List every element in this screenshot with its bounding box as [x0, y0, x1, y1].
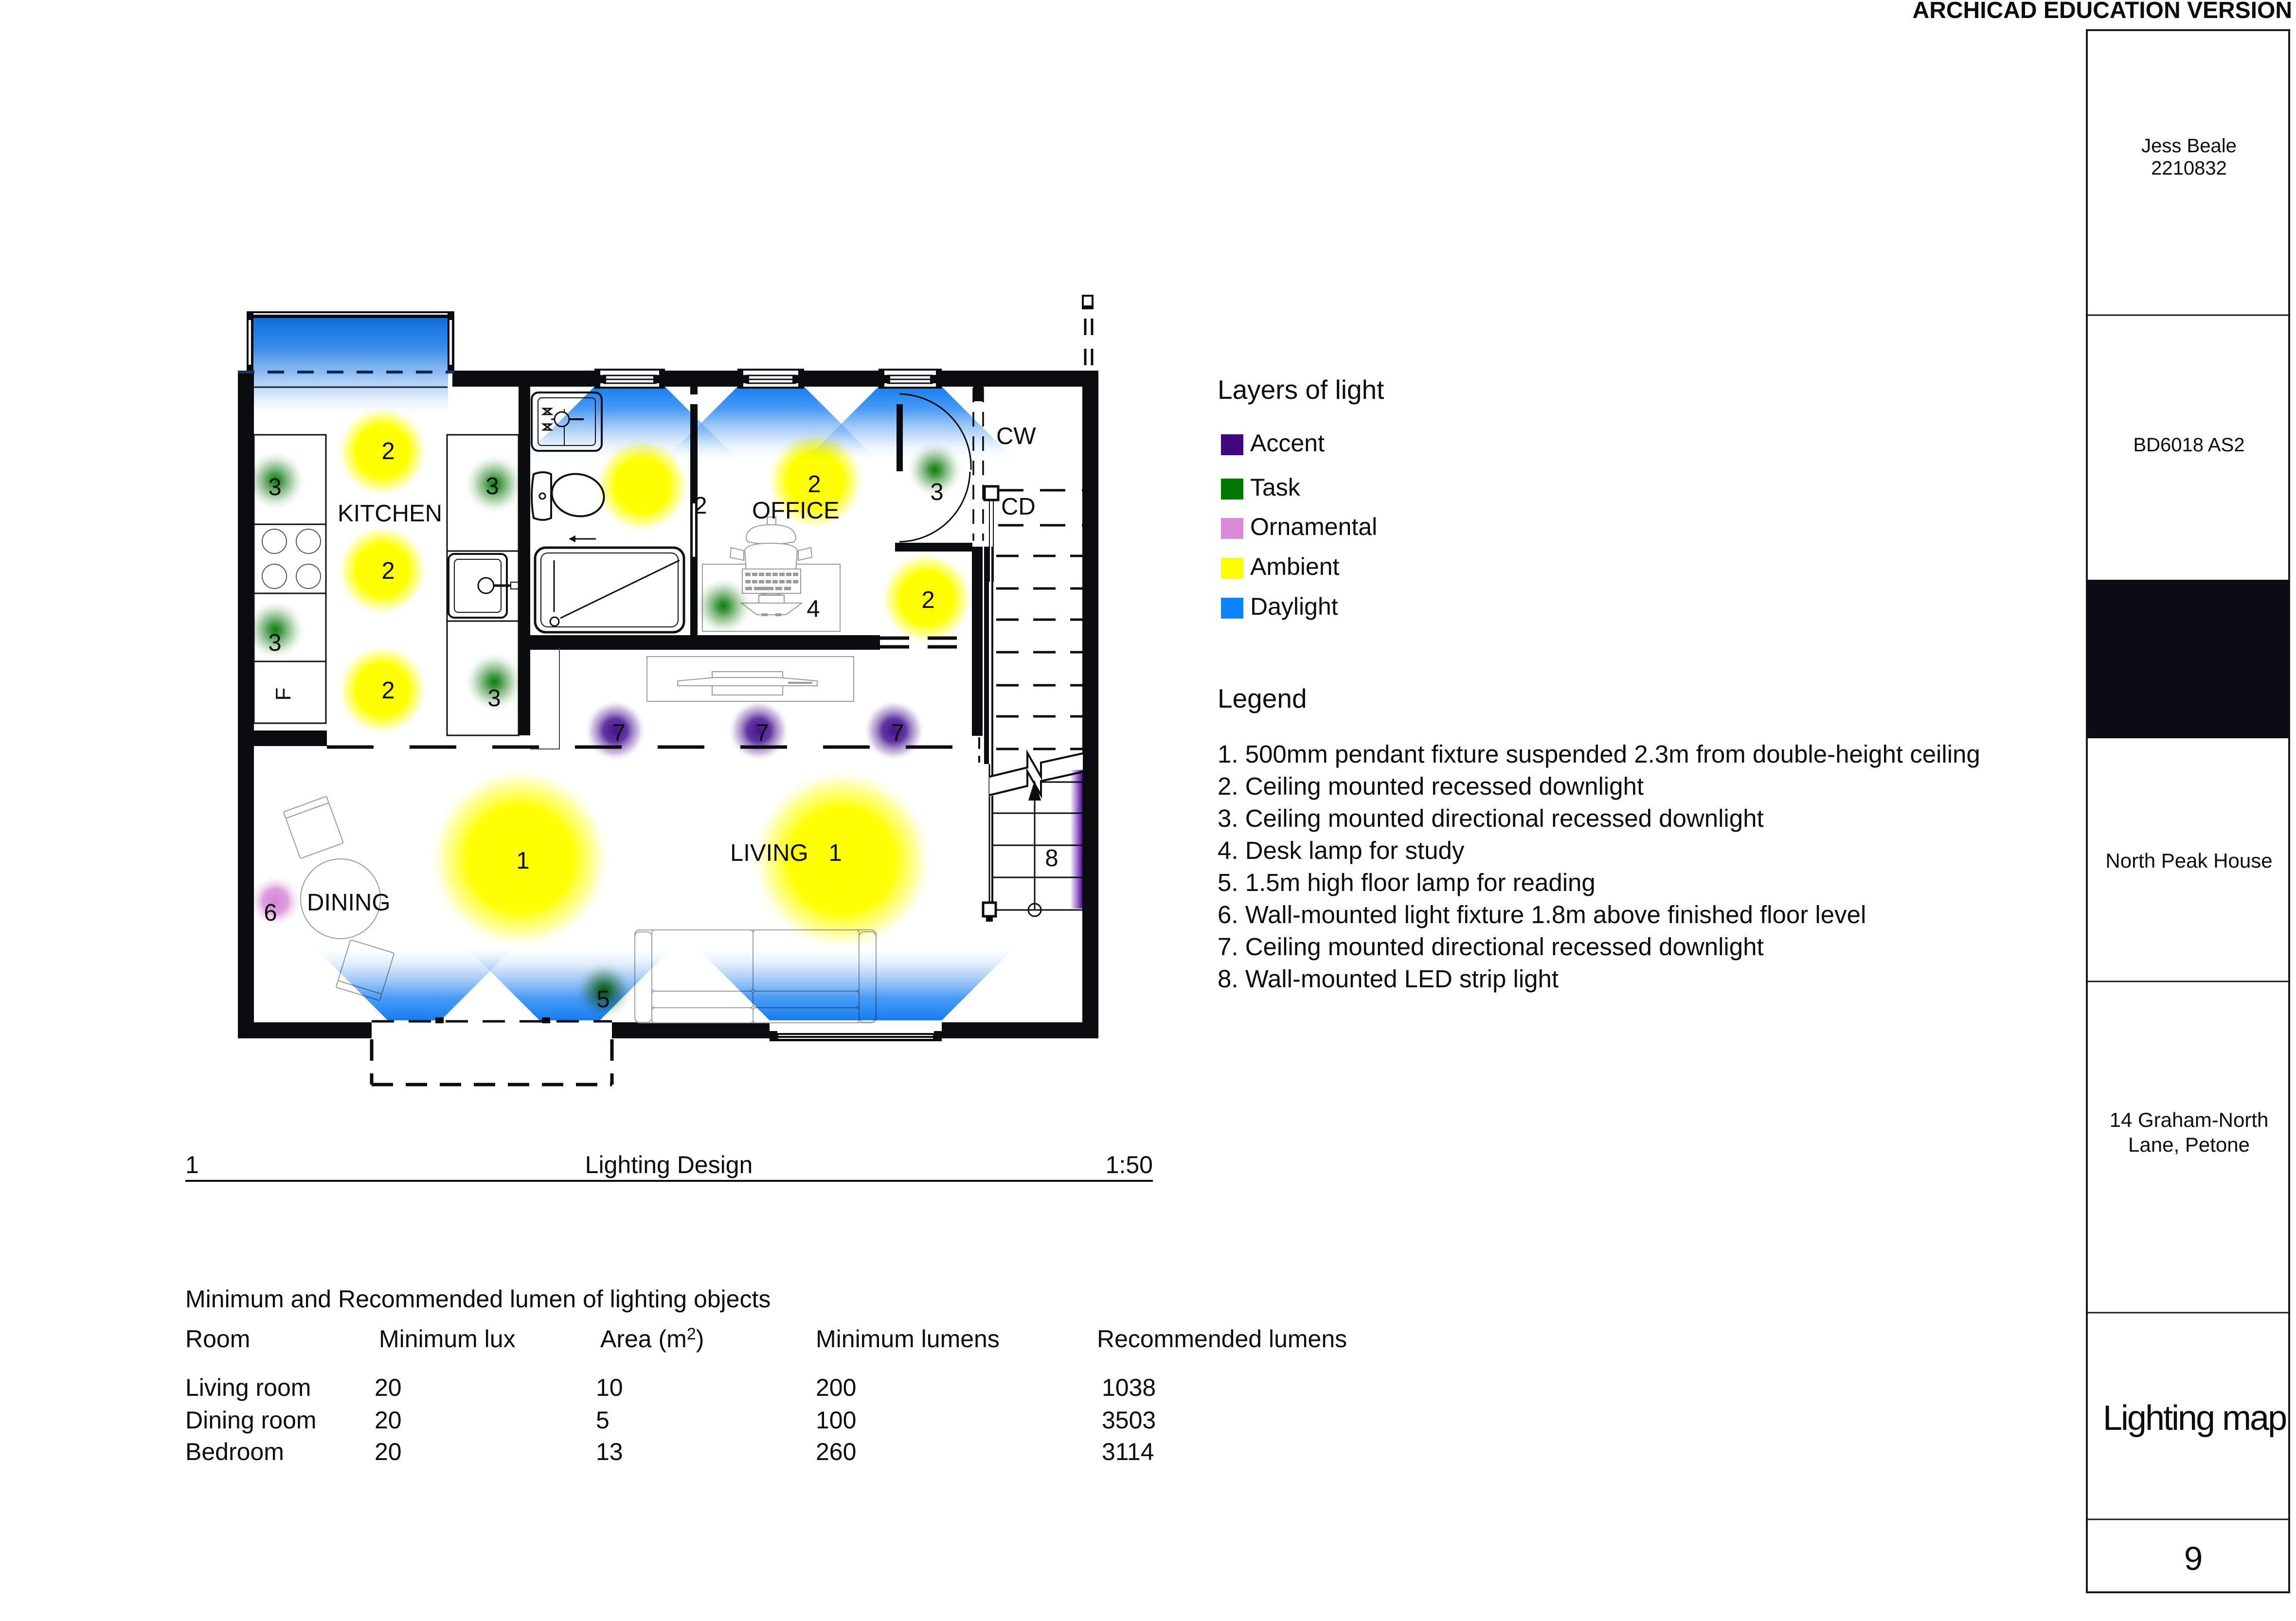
svg-text:7: 7 — [755, 720, 769, 746]
svg-text:3. Ceiling mounted directional: 3. Ceiling mounted directional recessed … — [1218, 804, 1764, 832]
svg-text:200: 200 — [816, 1374, 856, 1401]
svg-text:3: 3 — [930, 479, 943, 505]
svg-text:1: 1 — [828, 840, 842, 866]
svg-text:2: 2 — [807, 471, 821, 498]
svg-text:Recommended lumens: Recommended lumens — [1097, 1325, 1347, 1353]
svg-text:100: 100 — [816, 1407, 856, 1434]
svg-text:Area (m2): Area (m2) — [600, 1325, 704, 1353]
svg-text:3114: 3114 — [1102, 1438, 1154, 1465]
svg-text:LIVING: LIVING — [730, 840, 808, 866]
svg-text:3: 3 — [268, 630, 281, 656]
svg-text:20: 20 — [375, 1374, 402, 1401]
svg-text:10: 10 — [596, 1374, 623, 1401]
svg-text:Dining room: Dining room — [185, 1407, 317, 1434]
svg-text:Minimum lux: Minimum lux — [379, 1325, 516, 1353]
svg-text:3: 3 — [268, 474, 281, 500]
svg-text:Living room: Living room — [185, 1374, 311, 1401]
svg-text:20: 20 — [375, 1407, 402, 1434]
svg-text:ARCHICAD EDUCATION VERSION: ARCHICAD EDUCATION VERSION — [1913, 0, 2292, 23]
svg-text:2210832: 2210832 — [2151, 158, 2227, 179]
svg-text:Room: Room — [185, 1325, 250, 1353]
svg-text:6. Wall-mounted light fixture: 6. Wall-mounted light fixture 1.8m above… — [1218, 901, 1866, 928]
svg-text:1038: 1038 — [1102, 1374, 1156, 1401]
svg-text:5: 5 — [596, 1407, 610, 1434]
svg-text:Jess Beale: Jess Beale — [2141, 135, 2237, 157]
svg-text:2: 2 — [694, 493, 707, 519]
svg-text:Minimum and Recommended lumen: Minimum and Recommended lumen of lightin… — [185, 1285, 771, 1313]
svg-text:CW: CW — [996, 423, 1036, 449]
svg-text:Ambient: Ambient — [1250, 553, 1340, 580]
svg-text:8: 8 — [1045, 845, 1058, 872]
svg-text:Minimum lumens: Minimum lumens — [816, 1325, 1000, 1353]
svg-text:Ornamental: Ornamental — [1250, 513, 1377, 540]
svg-text:Lane, Petone: Lane, Petone — [2128, 1133, 2250, 1156]
svg-text:1:50: 1:50 — [1106, 1151, 1153, 1178]
svg-text:13: 13 — [596, 1438, 623, 1465]
svg-text:OFFICE: OFFICE — [752, 498, 840, 524]
svg-text:7: 7 — [612, 720, 625, 746]
svg-text:2. Ceiling mounted recessed do: 2. Ceiling mounted recessed downlight — [1218, 772, 1644, 800]
svg-text:1: 1 — [516, 848, 529, 874]
svg-text:6: 6 — [264, 900, 277, 926]
svg-text:7. Ceiling mounted directional: 7. Ceiling mounted directional recessed … — [1218, 933, 1764, 961]
svg-text:3: 3 — [485, 473, 499, 499]
svg-text:20: 20 — [375, 1438, 402, 1465]
svg-text:260: 260 — [816, 1438, 856, 1465]
svg-text:4: 4 — [807, 596, 820, 622]
svg-text:Legend: Legend — [1218, 683, 1307, 713]
svg-text:4. Desk lamp for study: 4. Desk lamp for study — [1218, 837, 1465, 864]
svg-text:BD6018 AS2: BD6018 AS2 — [2133, 434, 2244, 456]
svg-text:Lighting map: Lighting map — [2103, 1399, 2286, 1438]
svg-text:3503: 3503 — [1102, 1407, 1156, 1434]
svg-text:F: F — [271, 688, 295, 701]
svg-text:2: 2 — [381, 677, 395, 704]
svg-text:DINING: DINING — [307, 890, 391, 916]
svg-text:2: 2 — [381, 558, 395, 584]
svg-text:8. Wall-mounted LED strip ligh: 8. Wall-mounted LED strip light — [1218, 965, 1559, 993]
svg-text:7: 7 — [891, 720, 904, 746]
svg-text:Lighting Design: Lighting Design — [585, 1151, 753, 1178]
svg-text:Daylight: Daylight — [1250, 593, 1338, 620]
svg-text:14 Graham-North: 14 Graham-North — [2110, 1108, 2269, 1131]
svg-text:North Peak House: North Peak House — [2105, 849, 2272, 872]
svg-text:5. 1.5m high floor lamp for re: 5. 1.5m high floor lamp for reading — [1218, 869, 1596, 896]
svg-text:Accent: Accent — [1250, 429, 1325, 457]
svg-text:2: 2 — [921, 587, 934, 613]
svg-text:Layers of light: Layers of light — [1218, 374, 1384, 405]
svg-text:1. 500mm pendant fixture suspe: 1. 500mm pendant fixture suspended 2.3m … — [1218, 740, 1980, 768]
svg-text:5: 5 — [596, 986, 610, 1013]
svg-text:3: 3 — [487, 685, 501, 712]
svg-text:1: 1 — [185, 1151, 199, 1178]
svg-text:KITCHEN: KITCHEN — [338, 500, 442, 527]
svg-text:2: 2 — [381, 438, 395, 464]
svg-text:Bedroom: Bedroom — [185, 1438, 284, 1465]
svg-text:Task: Task — [1250, 474, 1301, 501]
svg-text:9: 9 — [2184, 1540, 2203, 1577]
svg-text:CD: CD — [1001, 494, 1036, 520]
